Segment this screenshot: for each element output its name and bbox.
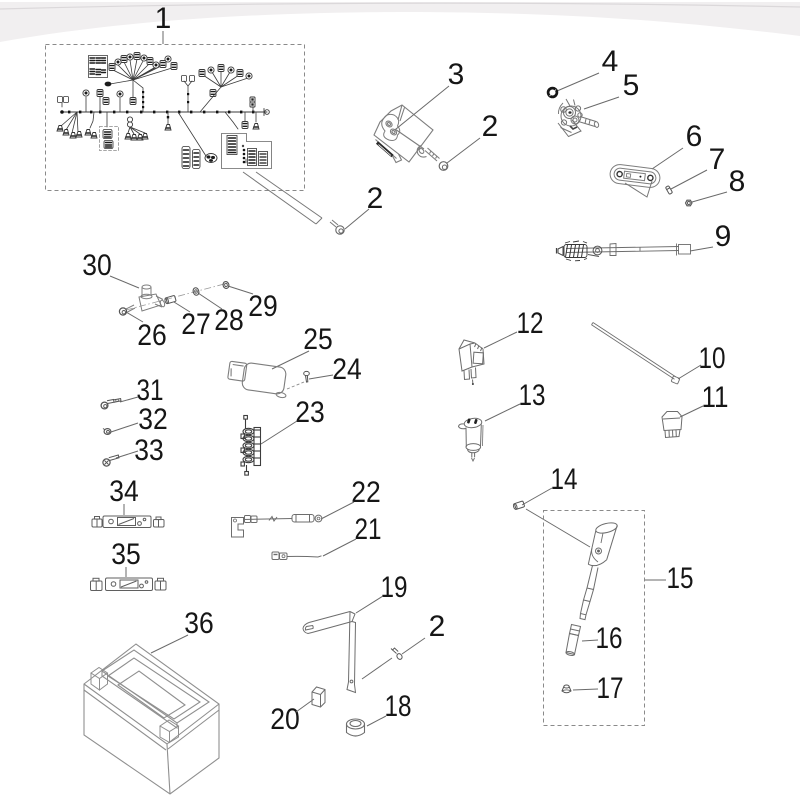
svg-text:20: 20 xyxy=(270,703,300,736)
svg-text:12: 12 xyxy=(517,307,544,340)
svg-text:8: 8 xyxy=(729,165,746,198)
svg-text:26: 26 xyxy=(137,319,167,352)
svg-text:33: 33 xyxy=(134,434,164,467)
svg-text:32: 32 xyxy=(138,403,168,436)
svg-text:36: 36 xyxy=(184,607,214,640)
svg-text:3: 3 xyxy=(448,58,465,91)
svg-text:17: 17 xyxy=(597,672,624,705)
svg-text:16: 16 xyxy=(596,622,623,655)
svg-text:6: 6 xyxy=(686,120,703,153)
svg-text:2: 2 xyxy=(367,182,384,215)
svg-text:25: 25 xyxy=(303,323,333,356)
svg-text:11: 11 xyxy=(702,381,729,414)
svg-text:1: 1 xyxy=(155,2,172,35)
svg-text:9: 9 xyxy=(715,220,732,253)
svg-text:13: 13 xyxy=(519,379,546,412)
svg-text:7: 7 xyxy=(709,143,726,176)
svg-text:14: 14 xyxy=(551,463,578,496)
svg-text:22: 22 xyxy=(351,476,381,509)
svg-text:24: 24 xyxy=(332,353,362,386)
svg-text:34: 34 xyxy=(109,475,139,508)
svg-text:23: 23 xyxy=(295,396,325,429)
svg-text:2: 2 xyxy=(482,110,499,143)
svg-text:4: 4 xyxy=(602,45,619,78)
svg-text:18: 18 xyxy=(385,690,412,723)
svg-text:15: 15 xyxy=(667,562,694,595)
svg-text:2: 2 xyxy=(429,610,446,643)
svg-text:5: 5 xyxy=(623,69,640,102)
svg-text:28: 28 xyxy=(214,304,244,337)
svg-text:35: 35 xyxy=(111,538,141,571)
svg-text:19: 19 xyxy=(381,571,408,604)
svg-text:27: 27 xyxy=(181,308,211,341)
svg-text:10: 10 xyxy=(699,342,726,375)
svg-text:21: 21 xyxy=(355,513,382,546)
svg-text:29: 29 xyxy=(248,290,278,323)
svg-text:30: 30 xyxy=(82,249,112,282)
